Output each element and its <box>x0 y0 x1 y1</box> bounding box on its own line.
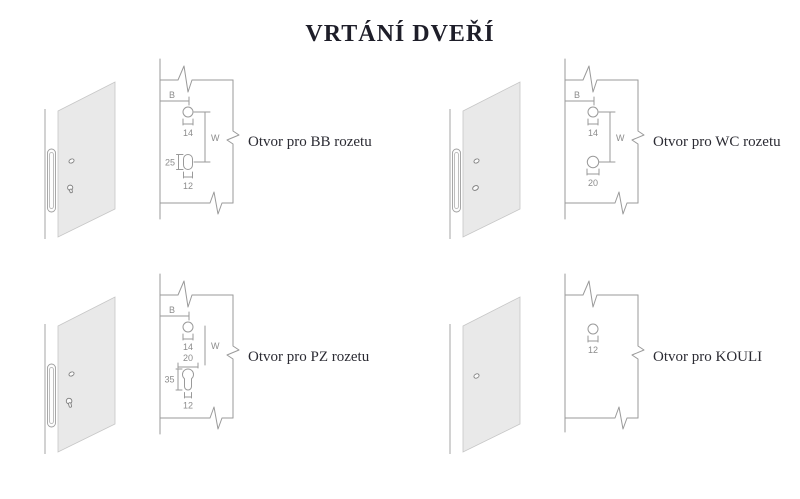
pz-cylinder-drawing <box>183 369 194 390</box>
bottom-break-line <box>565 192 638 214</box>
diagram-label-kouli: Otvor pro KOULI <box>653 349 762 365</box>
dim-12-label: 12 <box>183 181 193 191</box>
drilling-diagram-bb: B 14 W 25 12 <box>160 59 239 219</box>
dim-14-label: 14 <box>588 128 598 138</box>
drilling-diagram-kouli: 12 <box>565 274 644 432</box>
top-break-line <box>565 281 638 307</box>
knob-hole-drawing <box>588 324 598 334</box>
key-slot-drawing <box>184 155 193 170</box>
dim-b-label: B <box>169 90 175 100</box>
door-illustration-pz <box>45 297 115 454</box>
door-illustration-kouli <box>450 297 520 454</box>
right-break-line <box>632 295 644 418</box>
dim-w-line <box>194 112 210 162</box>
door-illustration-bb <box>45 82 115 239</box>
drilling-diagram-wc: B 14 W 20 <box>565 59 644 219</box>
dim-w-line <box>599 112 615 162</box>
top-break-line <box>565 66 638 92</box>
section-wc: B 14 W 20 Otvor pro WC rozetu <box>400 49 800 264</box>
dim-12-label: 12 <box>183 401 193 411</box>
diagram-label-bb: Otvor pro BB rozetu <box>248 134 372 150</box>
dim-14-label: 14 <box>183 342 193 352</box>
right-break-line <box>632 80 644 203</box>
dim-14-label: 14 <box>183 128 193 138</box>
section-bb: B 14 W 25 12 Otvor pro BB rozetu <box>0 49 400 264</box>
dim-12-bracket <box>588 336 598 342</box>
dim-w-label: W <box>616 133 625 143</box>
drilling-diagram-pz: B 14 20 35 12 W <box>160 274 239 434</box>
diagram-label-pz: Otvor pro PZ rozetu <box>248 349 370 365</box>
dim-25-label: 25 <box>165 158 175 168</box>
dim-b-label: B <box>574 90 580 100</box>
dim-w-label: W <box>211 341 220 351</box>
page-title: VRTÁNÍ DVEŘÍ <box>0 0 800 49</box>
spindle-hole-drawing <box>588 107 598 117</box>
wc-figure: B 14 W 20 Otvor pro WC rozetu <box>400 49 800 264</box>
dim-cyl-20-label: 20 <box>183 353 193 363</box>
lock-faceplate <box>48 364 56 427</box>
door-panel <box>463 82 520 237</box>
pz-figure: B 14 20 35 12 W Otvor pro PZ rozetu <box>0 264 400 478</box>
diagram-grid: B 14 W 25 12 Otvor pro BB rozetu <box>0 49 800 478</box>
dim-12-label: 12 <box>588 345 598 355</box>
section-kouli: 12 Otvor pro KOULI <box>400 264 800 478</box>
dim-12-bracket <box>185 393 192 399</box>
dim-w-label: W <box>211 133 220 143</box>
section-pz: B 14 20 35 12 W Otvor pro PZ rozetu <box>0 264 400 478</box>
dim-b-label: B <box>169 305 175 315</box>
dim-14-bracket <box>183 334 193 340</box>
diagram-label-wc: Otvor pro WC rozetu <box>653 134 781 150</box>
dim-25-bracket <box>177 155 184 170</box>
kouli-figure: 12 Otvor pro KOULI <box>400 264 800 478</box>
dim-20-bracket <box>178 363 198 368</box>
lock-faceplate <box>48 149 56 212</box>
lock-faceplate <box>453 149 461 212</box>
bottom-break-line <box>160 407 233 429</box>
right-break-line <box>227 80 239 203</box>
spindle-hole-drawing <box>183 107 193 117</box>
door-panel <box>58 297 115 452</box>
door-panel <box>463 297 520 452</box>
dim-20-bracket <box>587 169 599 175</box>
spindle-hole-drawing <box>183 322 193 332</box>
door-illustration-wc <box>450 82 520 239</box>
dim-35-bracket <box>176 369 182 390</box>
dim-14-bracket <box>183 119 193 125</box>
bottom-break-line <box>160 192 233 214</box>
dim-20-label: 20 <box>588 178 598 188</box>
dim-14-bracket <box>588 119 598 125</box>
right-break-line <box>227 295 239 418</box>
bb-figure: B 14 W 25 12 Otvor pro BB rozetu <box>0 49 400 264</box>
wc-turn-hole-drawing <box>587 156 598 167</box>
top-break-line <box>160 281 233 307</box>
top-break-line <box>160 66 233 92</box>
dim-35-label: 35 <box>164 375 174 385</box>
bottom-break-line <box>565 407 638 429</box>
door-panel <box>58 82 115 237</box>
dim-12-bracket <box>184 172 193 178</box>
